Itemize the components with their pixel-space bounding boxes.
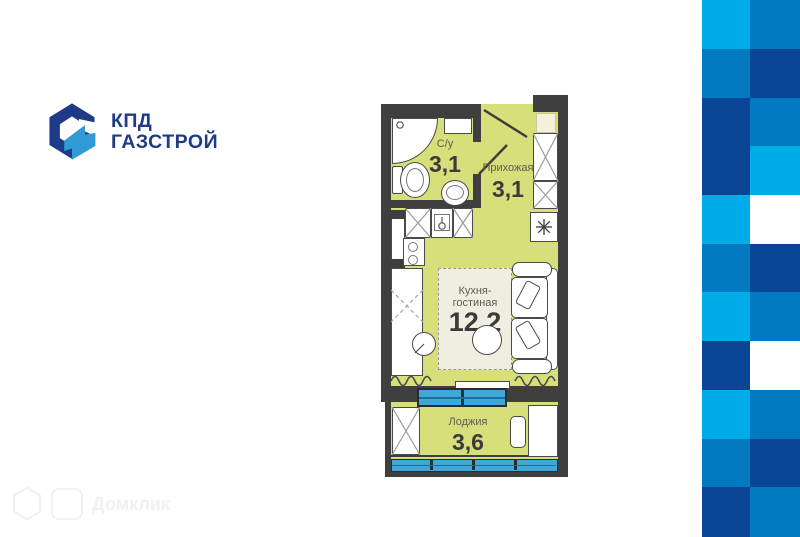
watermark-app-icon (51, 488, 83, 520)
pattern-cell (750, 341, 800, 390)
pattern-cell (750, 49, 800, 98)
brand-pattern (0, 0, 800, 536)
pattern-cell (702, 341, 750, 390)
pattern-cell (702, 98, 750, 147)
watermark: Домклик (12, 486, 170, 522)
pattern-cell (702, 292, 750, 341)
pattern-cell (750, 292, 800, 341)
pattern-cell (702, 0, 750, 49)
watermark-text: Домклик (92, 494, 170, 515)
pattern-cell (702, 390, 750, 439)
pattern-cell (702, 487, 750, 536)
pattern-cell (702, 244, 750, 293)
pattern-cell (750, 244, 800, 293)
pattern-cell (750, 98, 800, 147)
watermark-logo-icon (12, 486, 42, 522)
pattern-cell (702, 146, 750, 195)
pattern-cell (750, 195, 800, 244)
pattern-cell (750, 439, 800, 488)
pattern-cell (702, 195, 750, 244)
pattern-cell (750, 146, 800, 195)
pattern-cell (702, 49, 750, 98)
pattern-cell (750, 390, 800, 439)
pattern-cell (750, 487, 800, 536)
pattern-cell (750, 0, 800, 49)
pattern-cell (702, 439, 750, 488)
